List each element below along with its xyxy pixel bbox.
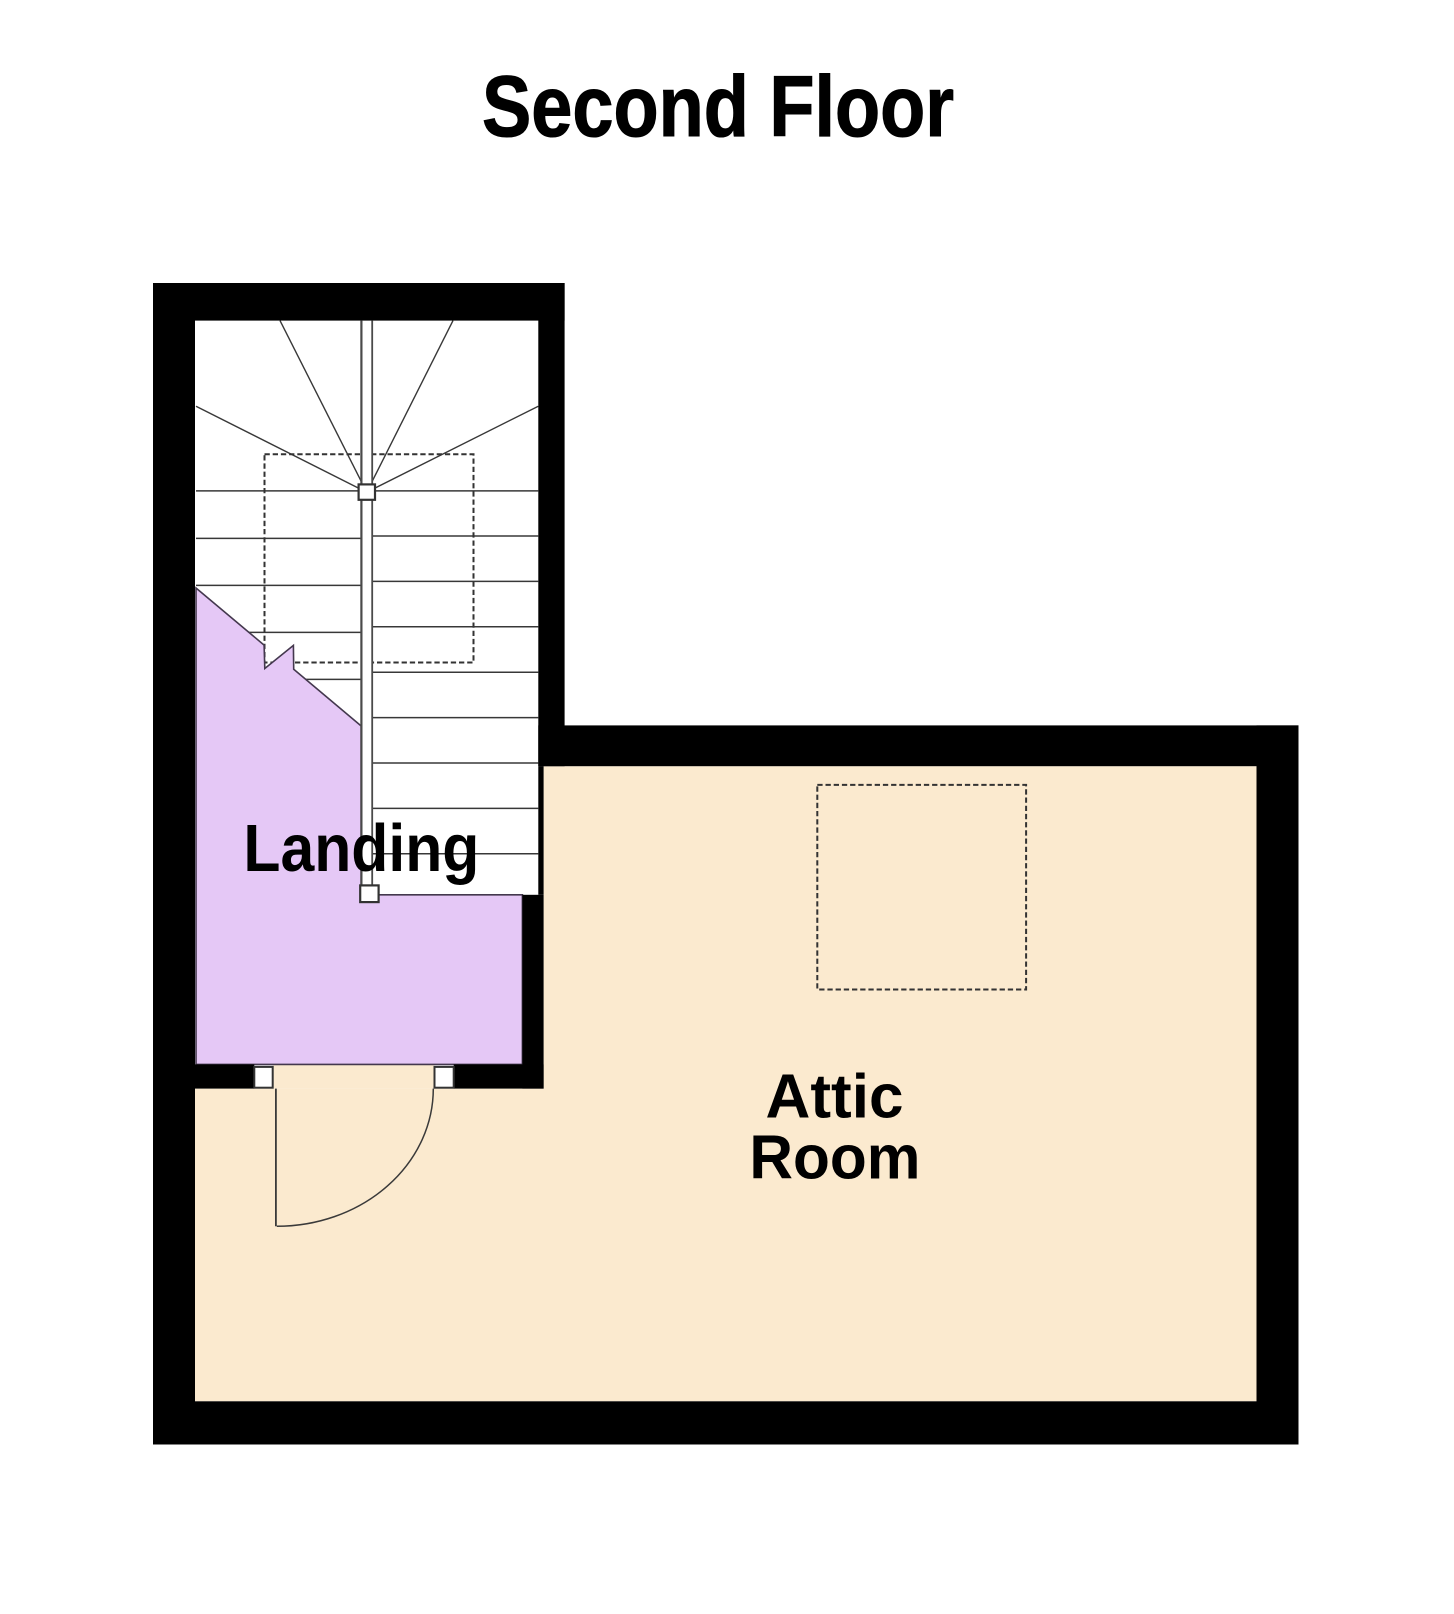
svg-text:Room: Room [749, 1124, 920, 1193]
svg-text:Second Floor: Second Floor [482, 59, 954, 155]
svg-text:Attic: Attic [766, 1062, 904, 1131]
svg-text:Landing: Landing [243, 811, 479, 886]
